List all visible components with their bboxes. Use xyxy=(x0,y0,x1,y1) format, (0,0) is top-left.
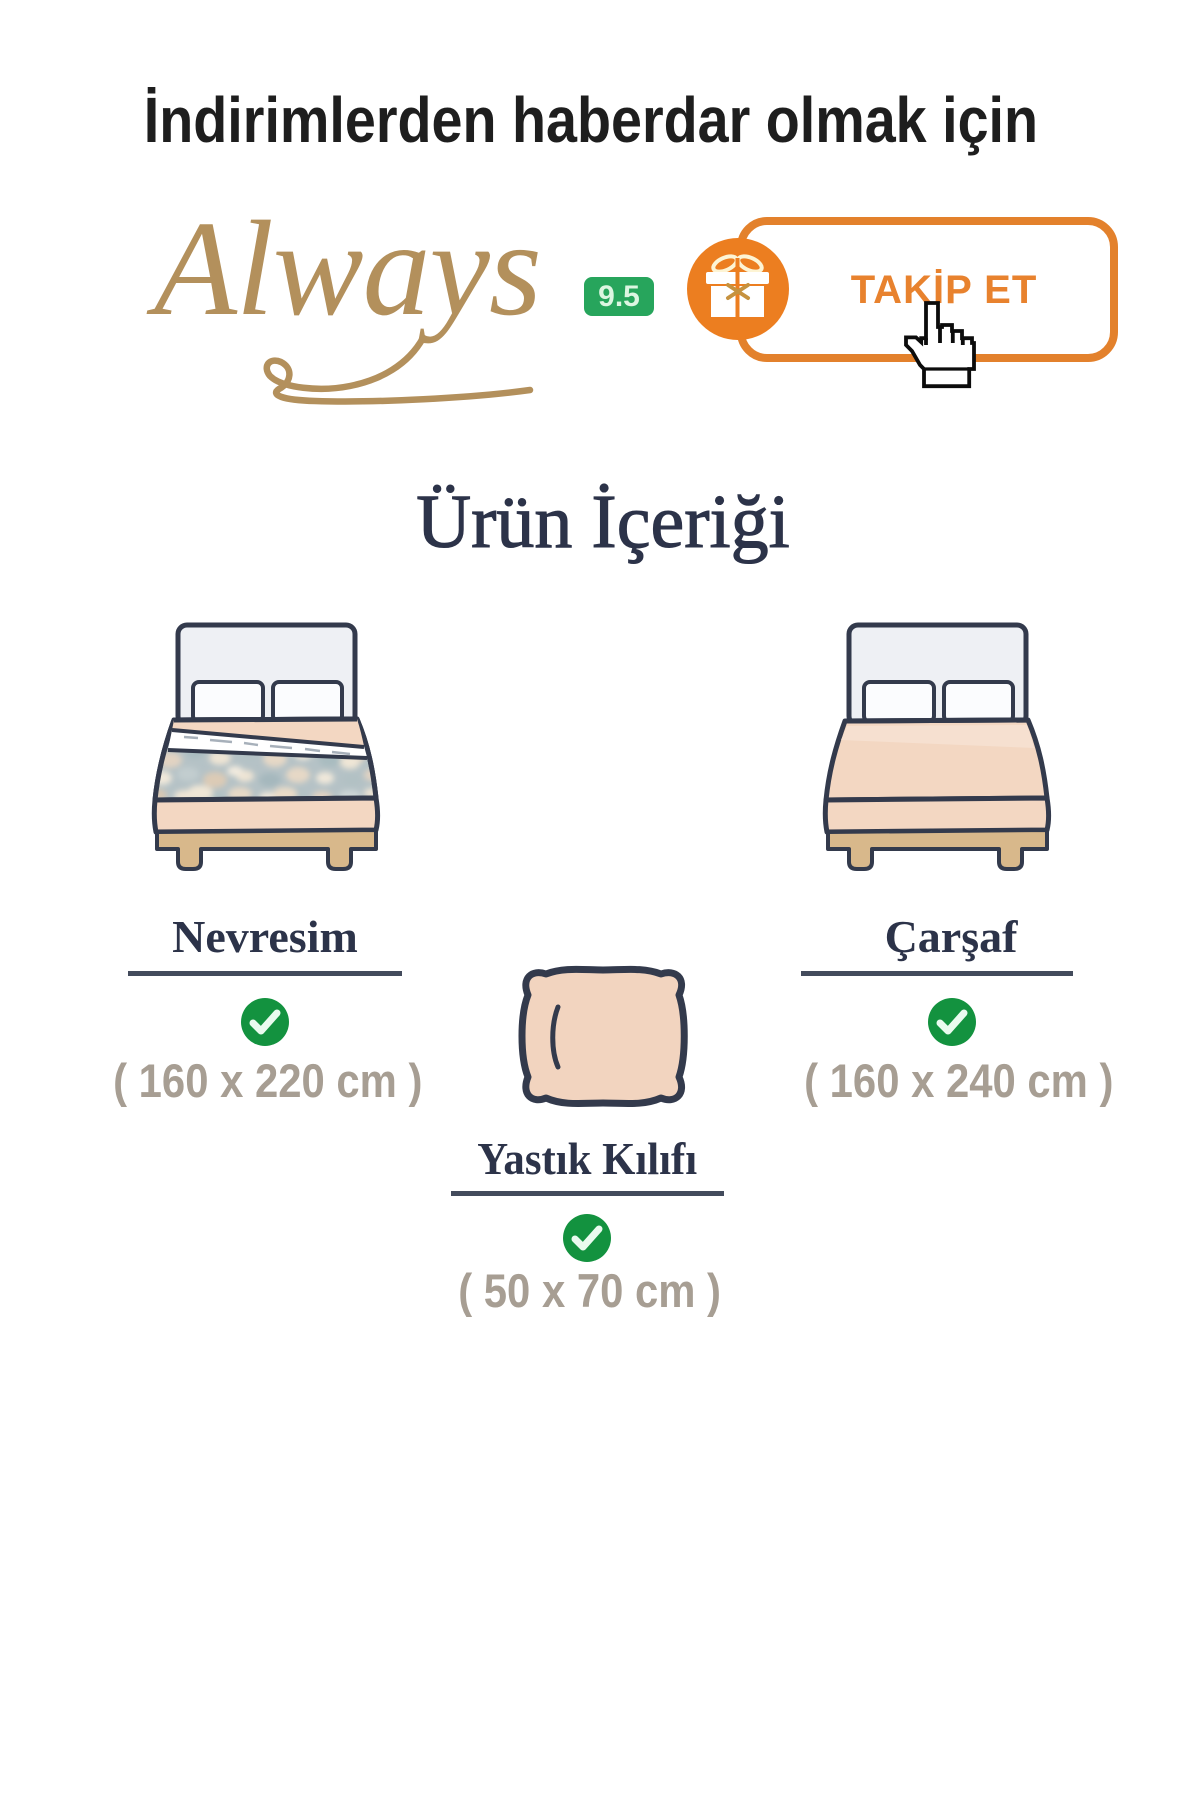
svg-text:Always: Always xyxy=(146,200,541,344)
